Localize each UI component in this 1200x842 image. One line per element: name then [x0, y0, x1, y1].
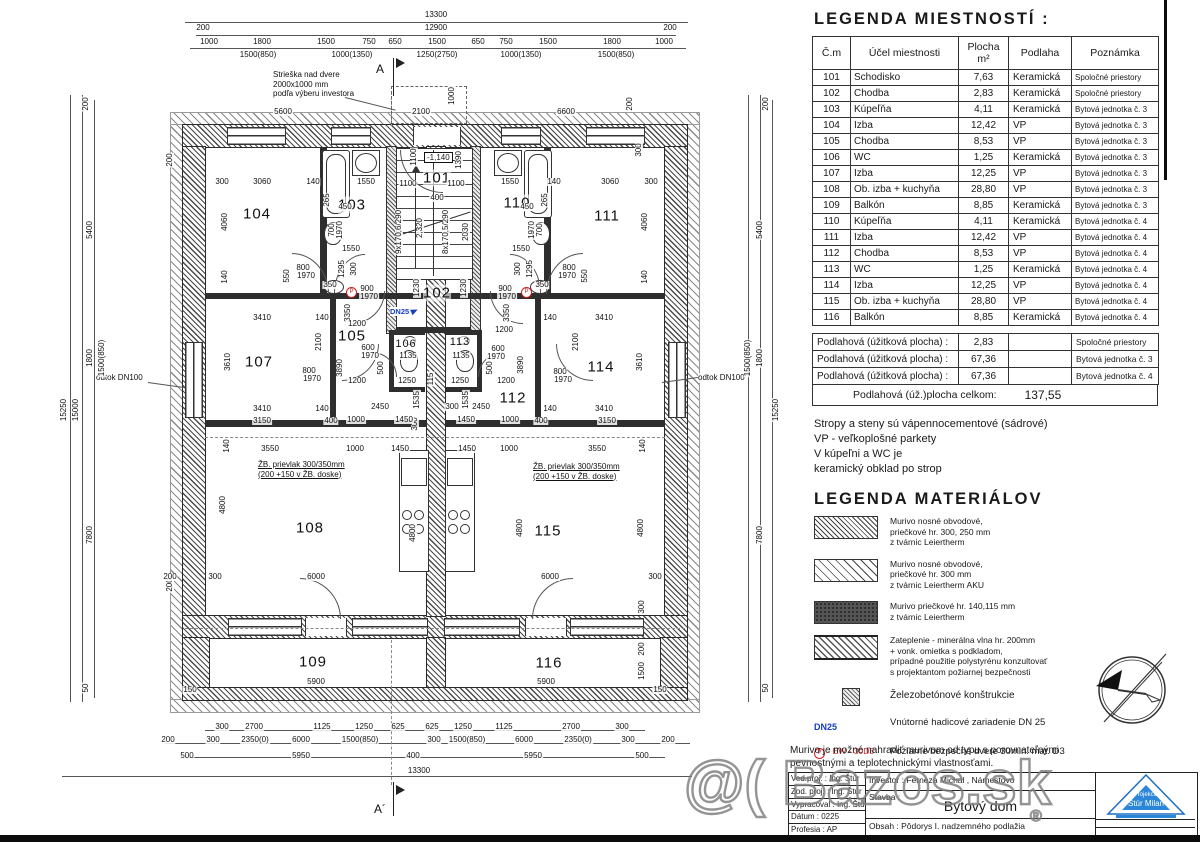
investor-field: Investor : Ferneza Michal , Námestovo: [866, 773, 1095, 791]
col-header: Plocha m²: [959, 37, 1009, 70]
dim-label: 3410: [594, 405, 614, 413]
legend-room-row: 105Chodba8,53VPBytová jednotka č. 3: [813, 134, 1159, 150]
cell: VP: [1009, 134, 1072, 150]
dim-label: 140: [641, 269, 649, 284]
cell: Izba: [851, 230, 959, 246]
cell: Keramická: [1009, 262, 1072, 278]
dim-label: 1550: [500, 178, 520, 186]
dim-label: 200: [638, 641, 646, 656]
cell: VP: [1009, 118, 1072, 134]
dim-label: 2350(0): [240, 736, 270, 744]
dim-label: 200: [195, 24, 210, 32]
cell: Ob. izba + kuchyňa: [851, 294, 959, 310]
dim-label: 6000: [514, 736, 534, 744]
swatch-col: DN25: [814, 717, 890, 735]
material-text: Zateplenie - minerálna vlna hr. 200mm + …: [890, 635, 1047, 677]
cell: 7,63: [959, 70, 1009, 86]
dim-label: 13300: [407, 767, 431, 775]
dim-label: 140: [314, 314, 329, 322]
cell: Chodba: [851, 134, 959, 150]
dim-label: 5900: [306, 678, 326, 686]
cell: 113: [813, 262, 851, 278]
cell: 103: [813, 102, 851, 118]
swatch-col: [814, 601, 890, 624]
dim-label: 1500: [538, 38, 558, 46]
dim-label: 1230: [413, 278, 421, 298]
dim-label: 5400: [756, 220, 764, 240]
dim-label: 1500: [427, 38, 447, 46]
dim-line: [62, 776, 692, 777]
cell: Balkón: [851, 310, 959, 326]
dim-label: 1000: [346, 416, 366, 424]
dim-label: 1450: [457, 445, 477, 453]
cell: 111: [813, 230, 851, 246]
dim-label: 4060: [641, 212, 649, 232]
col-header: Poznámka: [1072, 37, 1159, 70]
project-name: Bytový dom: [866, 798, 1095, 814]
dim-label: 3150: [252, 417, 272, 425]
dim-label: 140: [542, 314, 557, 322]
total-value: 137,55: [1025, 388, 1062, 402]
cell: 115: [813, 294, 851, 310]
dim-label: 15250: [772, 398, 780, 422]
cell: 106: [813, 150, 851, 166]
cell: VP: [1009, 294, 1072, 310]
cell: VP: [1009, 182, 1072, 198]
dim-label: 5900: [536, 678, 556, 686]
dim-label: 1970: [302, 375, 322, 383]
dim-label: 200: [762, 96, 770, 111]
cell: 104: [813, 118, 851, 134]
total-area-row: Podlahová (úž.)plocha celkom: 137,55: [812, 385, 1158, 406]
dim-label: 3060: [600, 178, 620, 186]
dim-label: 1000: [500, 416, 520, 424]
dim-label: 2030: [462, 222, 470, 242]
room-number-label: 107: [245, 354, 273, 371]
material-item: Murivo priečkové hr. 140,115 mm z tvárni…: [814, 601, 1158, 624]
dim-label: 2450: [370, 403, 390, 411]
summary-note: Bytová jednotka č. 3: [1072, 351, 1159, 368]
window: [228, 618, 302, 636]
dim-label: 625: [424, 723, 439, 731]
dim-label: 13300: [424, 11, 448, 19]
dim-label: 300: [647, 573, 662, 581]
dim-label: 1500: [316, 38, 336, 46]
dim-label: 300: [643, 178, 658, 186]
cell: 8,85: [959, 310, 1009, 326]
cell: Bytová jednotka č. 3: [1072, 118, 1159, 134]
cell: 28,80: [959, 182, 1009, 198]
cell: Izba: [851, 118, 959, 134]
stove-burner: [414, 510, 424, 520]
logo-text-name: Štúr Milan: [1128, 799, 1164, 808]
dim-label: 650: [470, 38, 485, 46]
cell: Bytová jednotka č. 3: [1072, 102, 1159, 118]
summary-label: Podlahová (úžitková plocha) :: [813, 334, 959, 351]
stove-burner: [460, 510, 470, 520]
cell: Bytová jednotka č. 4: [1072, 278, 1159, 294]
construction-notes: Stropy a steny sú vápennocementové (sádr…: [814, 417, 1158, 477]
dim-label: 300: [635, 142, 643, 157]
dim-label: 300: [514, 261, 522, 276]
aku-masonry-swatch: [814, 559, 878, 582]
cell: 116: [813, 310, 851, 326]
balcony-door-opening: [305, 618, 347, 636]
washing-machine: [494, 150, 522, 176]
cell: Keramická: [1009, 214, 1072, 230]
dim-label: 1250(2750): [416, 51, 459, 59]
swatch-col: [814, 688, 890, 706]
dim-label: 12900: [424, 24, 448, 32]
dim-label: 500: [634, 752, 649, 760]
cell: Bytová jednotka č. 3: [1072, 134, 1159, 150]
dim-label: 3060: [252, 178, 272, 186]
dim-label: 1295: [526, 259, 534, 279]
dim-label: 4800: [219, 495, 227, 515]
dim-line: [82, 95, 83, 702]
summary-label: Podlahová (úžitková plocha) :: [813, 351, 959, 368]
level-marker: -1,140: [424, 152, 453, 163]
dim-label: 500: [179, 752, 194, 760]
fire-door-marker: P: [346, 287, 357, 298]
table-header-row: Č.m Účel miestnosti Plocha m² Podlaha Po…: [813, 37, 1159, 70]
stove-burner: [448, 524, 458, 534]
washing-machine: [352, 150, 380, 176]
dim-label: 1295: [338, 259, 346, 279]
room-number-label: 115: [535, 523, 562, 540]
summary-spacer: [1009, 334, 1072, 351]
kitchen-sink: [401, 458, 427, 486]
room-legend-table: Č.m Účel miestnosti Plocha m² Podlaha Po…: [812, 36, 1159, 326]
photo-edge-right: [1164, 0, 1167, 180]
dim-label: 200: [162, 573, 177, 581]
dim-label: 300: [205, 736, 220, 744]
section-arrow: [396, 58, 410, 68]
dim-label: 1000: [654, 38, 674, 46]
room-number-label: 111: [594, 208, 620, 225]
insulation-layer: [171, 125, 183, 712]
dim-label: 1125: [312, 723, 331, 731]
summary-row: Podlahová (úžitková plocha) : 67,36 Byto…: [813, 351, 1159, 368]
cell: Chodba: [851, 86, 959, 102]
dim-label: 140: [223, 438, 231, 453]
dim-label: 200: [160, 736, 175, 744]
dim-line: [196, 35, 676, 36]
dim-label: 140: [546, 178, 561, 186]
material-text: Vnútorné hadicové zariadenie DN 25: [890, 717, 1045, 735]
col-header: Podlaha: [1009, 37, 1072, 70]
dim-label: 1535: [413, 390, 421, 410]
summary-label: Podlahová (úžitková plocha) :: [813, 368, 959, 385]
material-text: Železobetónové konštrukcie: [890, 688, 1015, 706]
dim-label: 200: [660, 736, 675, 744]
dim-label: 1800: [252, 38, 272, 46]
window: [570, 618, 644, 636]
dim-label: 5950: [523, 752, 543, 760]
dim-label: 750: [498, 38, 513, 46]
cell: VP: [1009, 230, 1072, 246]
section-label-top: A: [376, 62, 384, 76]
dim-label: 300: [426, 736, 441, 744]
cell: Keramická: [1009, 86, 1072, 102]
legend-room-row: 113WC1,25KeramickáBytová jednotka č. 4: [813, 262, 1159, 278]
dim-label: 15250: [60, 398, 68, 422]
legend-rooms-title: LEGENDA MIESTNOSTÍ :: [814, 10, 1158, 29]
room-number-label: 102: [423, 285, 451, 302]
wc-wall: [446, 330, 482, 335]
legend-room-row: 106WC1,25KeramickáBytová jednotka č. 3: [813, 150, 1159, 166]
cell: Bytová jednotka č. 4: [1072, 262, 1159, 278]
cell: 101: [813, 70, 851, 86]
section-arrow: [396, 785, 410, 795]
dim-label: 1000: [448, 86, 456, 106]
legend-room-row: 109Balkón8,85KeramickáBytová jednotka č.…: [813, 198, 1159, 214]
dim-label: 5400: [86, 220, 94, 240]
dim-label: 500: [377, 360, 385, 375]
title-block-field: Zod. proj. : Ing. Štúr: [789, 786, 865, 799]
dim-label: 9x170,6/290: [395, 209, 403, 255]
fire-door-marker: P: [521, 287, 532, 298]
dim-label: 400: [429, 194, 444, 202]
dim-label: 750: [361, 38, 376, 46]
room-number-label: 114: [588, 359, 615, 376]
door-swing: [300, 578, 341, 619]
dim-label: 1250: [354, 723, 374, 731]
dim-label: 1100: [410, 147, 418, 166]
dim-label: 350: [534, 281, 549, 289]
window: [185, 342, 203, 418]
room-number-label: 106: [395, 338, 416, 350]
axis-line: [205, 437, 665, 438]
legend-room-row: 116Balkón8,85KeramickáBytová jednotka č.…: [813, 310, 1159, 326]
cell: 28,80: [959, 294, 1009, 310]
cell: Bytová jednotka č. 4: [1072, 214, 1159, 230]
material-text: Murivo nosné obvodové, priečkové hr. 300…: [890, 516, 990, 548]
room-number-label: 105: [338, 328, 366, 345]
dim-label: 3610: [224, 352, 232, 372]
title-block-mid: Investor : Ferneza Michal , Námestovo St…: [866, 773, 1096, 836]
content-field: Obsah : Pôdorys I. nadzemného podlažia: [866, 819, 1095, 836]
section-marker-line: [393, 58, 394, 96]
dim-label: 650: [387, 38, 402, 46]
insulation-swatch: [814, 635, 878, 660]
title-block-field: Ved.proj. : Ing. Štúr: [789, 773, 865, 786]
dim-label: 3550: [587, 445, 607, 453]
cell: VP: [1009, 246, 1072, 262]
dim-label: 1970: [497, 293, 517, 301]
dim-label: 1230: [460, 278, 468, 298]
summary-row: Podlahová (úžitková plocha) : 2,83 Spolo…: [813, 334, 1159, 351]
dim-label: 1200: [347, 320, 367, 328]
dim-label: 1800: [756, 348, 764, 368]
summary-value: 67,36: [959, 368, 1009, 385]
dim-label: 300: [350, 261, 358, 276]
cell: WC: [851, 150, 959, 166]
dim-label: 2100: [411, 108, 431, 116]
material-item: Murivo nosné obvodové, priečkové hr. 300…: [814, 559, 1158, 591]
cell: 8,85: [959, 198, 1009, 214]
legend-room-row: 107Izba12,25VPBytová jednotka č. 3: [813, 166, 1159, 182]
swatch-col: [814, 516, 890, 548]
dim-label: 4800: [516, 518, 524, 538]
summary-value: 67,36: [959, 351, 1009, 368]
canopy-note: Strieška nad dvere 2000x1000 mm podľa vý…: [273, 70, 354, 99]
dim-label: 265: [541, 192, 549, 207]
dim-label: 3350: [503, 303, 511, 323]
dim-label: 1970: [557, 272, 577, 280]
window: [501, 127, 541, 145]
dim-label: 1970: [528, 220, 536, 240]
dim-label: 200: [166, 152, 174, 167]
dim-label: 1135: [451, 352, 470, 360]
dim-label: 1970: [336, 220, 344, 240]
legend-room-row: 110Kúpeľňa4,11KeramickáBytová jednotka č…: [813, 214, 1159, 230]
dim-label: 2,320: [416, 217, 424, 239]
summary-row: Podlahová (úžitková plocha) : 67,36 Byto…: [813, 368, 1159, 385]
dim-label: 1200: [496, 377, 516, 385]
watermark-r-icon: ®: [1030, 808, 1042, 826]
project-field: Stavba : Bytový dom: [866, 791, 1095, 819]
dim-label: 50: [762, 683, 770, 694]
dim-label: 6000: [540, 573, 560, 581]
dim-label: 1550: [356, 178, 376, 186]
col-header: Č.m: [813, 37, 851, 70]
dim-label: 1550: [341, 245, 361, 253]
dim-label: 1970: [360, 352, 380, 360]
dim-line: [185, 757, 665, 758]
dim-label: 1250: [453, 723, 473, 731]
dim-label: 300: [214, 178, 229, 186]
stove-burner: [460, 524, 470, 534]
dim-label: 2100: [572, 332, 580, 352]
dim-label: 140: [314, 405, 329, 413]
window: [352, 618, 428, 636]
dim-label: 450: [519, 203, 534, 211]
dim-label: 140: [542, 405, 557, 413]
summary-spacer: [1009, 351, 1072, 368]
dim-label: 150: [652, 686, 667, 694]
dim-label: 7800: [756, 525, 764, 545]
room-number-label: 113: [450, 336, 471, 348]
cell: Bytová jednotka č. 3: [1072, 198, 1159, 214]
dim-label: 5950: [291, 752, 311, 760]
cell: VP: [1009, 278, 1072, 294]
dim-label: 3890: [517, 355, 525, 375]
legend-room-row: 101Schodisko7,63KeramickáSpoločné priest…: [813, 70, 1159, 86]
dim-label: 1970: [359, 293, 379, 301]
cell: 114: [813, 278, 851, 294]
balcony-wall-left: [183, 638, 209, 690]
cell: 107: [813, 166, 851, 182]
door-swing: [532, 578, 573, 619]
cell: Bytová jednotka č. 3: [1072, 166, 1159, 182]
dim-label: 1500: [638, 661, 646, 681]
window: [227, 127, 286, 145]
dim-label: 1450: [394, 416, 414, 424]
dim-label: 1970: [296, 272, 316, 280]
dim-label: 1125: [494, 723, 513, 731]
dim-label: 140: [305, 178, 320, 186]
summary-spacer: [1009, 368, 1072, 385]
legend-room-row: 115Ob. izba + kuchyňa28,80VPBytová jedno…: [813, 294, 1159, 310]
wc-wall: [389, 330, 425, 335]
dim-label: 140: [221, 269, 229, 284]
summary-note: Bytová jednotka č. 4: [1072, 368, 1159, 385]
dim-label: 550: [581, 268, 589, 283]
drain-note: odtok DN100: [698, 373, 745, 383]
partition-masonry-swatch: [814, 601, 878, 624]
dim-label: 3410: [252, 314, 272, 322]
room-number-label: 112: [500, 390, 527, 407]
dim-label: 200: [662, 24, 677, 32]
dim-label: 1970: [553, 376, 573, 384]
dim-line: [94, 100, 95, 698]
dim-label: 300: [614, 723, 629, 731]
cell: Ob. izba + kuchyňa: [851, 182, 959, 198]
dim-label: 1535: [462, 390, 470, 410]
dim-label: 1200: [494, 326, 514, 334]
dim-label: 550: [283, 268, 291, 283]
balcony-door-opening: [525, 618, 567, 636]
stove-burner: [402, 510, 412, 520]
dim-label: 350: [322, 281, 337, 289]
dim-label: 1000: [345, 445, 365, 453]
reinforced-concrete-swatch: [842, 688, 860, 706]
dim-label: 6000: [306, 573, 326, 581]
dim-label: 1800: [602, 38, 622, 46]
dim-label: 2350(0): [563, 736, 593, 744]
cell: 4,11: [959, 102, 1009, 118]
dim-label: 2700: [244, 723, 264, 731]
masonry-hatch-swatch: [814, 516, 878, 539]
title-block-left: Ved.proj. : Ing. ŠtúrZod. proj. : Ing. Š…: [789, 773, 866, 836]
cell: 112: [813, 246, 851, 262]
cell: Keramická: [1009, 198, 1072, 214]
col-header: Účel miestnosti: [851, 37, 959, 70]
beam-note: ŽB. prievlak 300/350mm (200 +150 v ŽB. d…: [533, 462, 620, 481]
legend-materials-title: LEGENDA MATERIÁLOV: [814, 490, 1158, 509]
masonry-replacement-note: Murivo je možné nahradiť murivom od typu…: [790, 745, 1059, 770]
dim-label: 5600: [273, 108, 293, 116]
dim-label: 2100: [315, 332, 323, 352]
cell: 12,25: [959, 166, 1009, 182]
cell: Bytová jednotka č. 3: [1072, 182, 1159, 198]
beam-note: ŽB. prievlak 300/350mm (200 +150 v ŽB. d…: [258, 460, 345, 479]
dim-label: 1000(1350): [500, 51, 543, 59]
dim-line: [748, 95, 749, 702]
dim-line: [760, 95, 761, 702]
dim-label: 400: [323, 417, 338, 425]
dim-label: 1800: [86, 348, 94, 368]
stove-burner: [448, 510, 458, 520]
cell: Keramická: [1009, 310, 1072, 326]
insulation-layer: [687, 125, 699, 712]
dim-label: 1200: [347, 377, 367, 385]
cell: 102: [813, 86, 851, 102]
dim-label: 300: [214, 723, 229, 731]
cell: 4,11: [959, 214, 1009, 230]
divider: [1096, 819, 1195, 820]
balcony-wall-bottom: [183, 688, 687, 700]
dim-label: 1500(850): [98, 339, 106, 377]
cell: Bytová jednotka č. 4: [1072, 230, 1159, 246]
dim-label: 2450: [471, 403, 491, 411]
cell: Izba: [851, 166, 959, 182]
dim-label: 4060: [221, 212, 229, 232]
dim-label: 140: [639, 438, 647, 453]
cell: 110: [813, 214, 851, 230]
legend-room-row: 114Izba12,25VPBytová jednotka č. 4: [813, 278, 1159, 294]
